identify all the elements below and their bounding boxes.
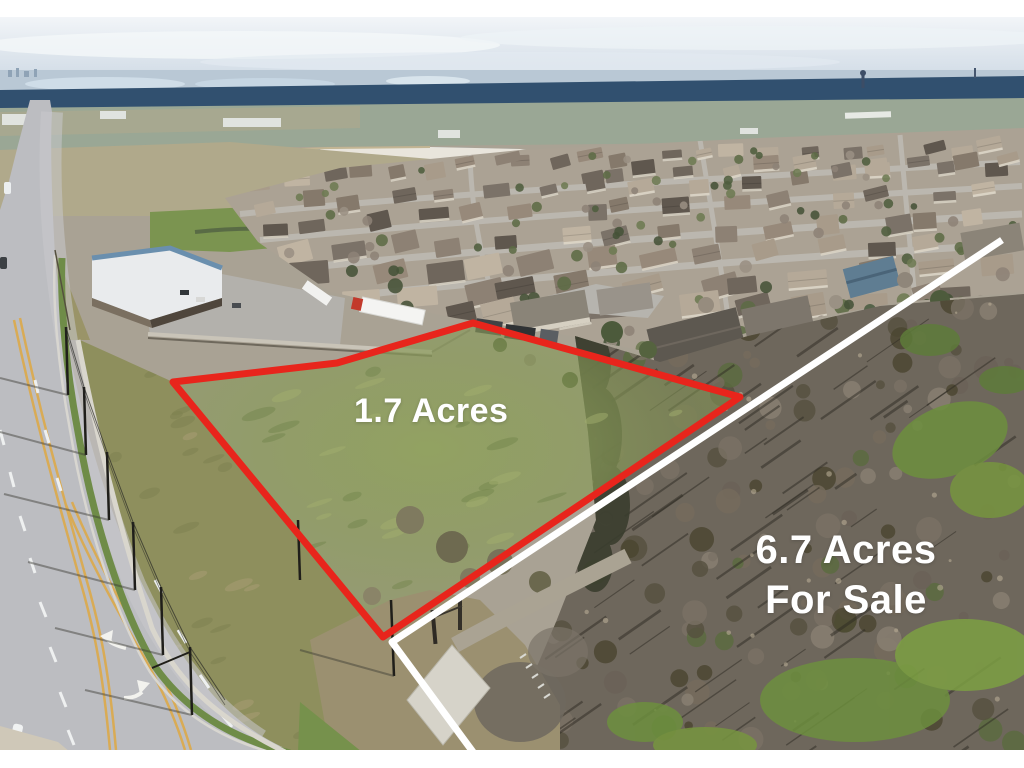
light-speck bbox=[842, 520, 847, 525]
tree bbox=[862, 157, 871, 166]
tree bbox=[348, 252, 360, 264]
tree bbox=[839, 215, 848, 224]
tree bbox=[794, 400, 816, 422]
tree bbox=[797, 207, 805, 215]
tree bbox=[811, 625, 835, 649]
tree bbox=[765, 420, 775, 430]
tree bbox=[723, 181, 732, 190]
tree bbox=[616, 262, 627, 273]
tree bbox=[512, 219, 520, 227]
tree bbox=[644, 583, 665, 604]
tree bbox=[376, 234, 388, 246]
tree bbox=[696, 213, 705, 222]
house bbox=[418, 207, 449, 223]
tree bbox=[326, 210, 336, 220]
tree bbox=[284, 248, 294, 258]
tree bbox=[388, 265, 399, 276]
tree bbox=[680, 201, 688, 209]
tree bbox=[346, 265, 358, 277]
tree bbox=[772, 163, 779, 170]
tree bbox=[996, 267, 1010, 281]
tree bbox=[756, 152, 763, 159]
light-speck bbox=[784, 662, 788, 666]
tree bbox=[874, 201, 883, 210]
tree bbox=[734, 155, 743, 164]
tree bbox=[938, 356, 960, 378]
tree bbox=[474, 243, 482, 251]
tree bbox=[842, 201, 850, 209]
tree bbox=[365, 242, 374, 251]
tree bbox=[884, 199, 894, 209]
light-speck bbox=[826, 471, 832, 477]
tree bbox=[689, 527, 714, 552]
tree bbox=[322, 190, 329, 197]
large-parcel-label-line2: For Sale bbox=[743, 578, 949, 623]
tree bbox=[296, 194, 304, 202]
tree bbox=[697, 665, 712, 680]
tree bbox=[793, 169, 802, 178]
light-speck bbox=[955, 312, 957, 314]
tree bbox=[726, 606, 742, 622]
tree bbox=[582, 205, 590, 213]
house bbox=[426, 260, 466, 287]
small-parcel-label: 1.7 Acres bbox=[354, 392, 508, 431]
tree bbox=[675, 503, 694, 522]
house bbox=[933, 191, 956, 204]
tree bbox=[509, 246, 517, 254]
large-parcel-label-line1: 6.7 Acres bbox=[743, 528, 949, 573]
tree bbox=[388, 278, 403, 293]
house bbox=[689, 179, 710, 197]
tree bbox=[863, 174, 870, 181]
frame-bottom bbox=[0, 750, 1024, 768]
tree bbox=[631, 187, 638, 194]
tree bbox=[515, 183, 524, 192]
tree bbox=[532, 202, 542, 212]
tree bbox=[813, 228, 824, 239]
tree bbox=[669, 241, 676, 248]
dark-gravel bbox=[528, 627, 588, 677]
house bbox=[303, 189, 326, 207]
car bbox=[0, 257, 7, 269]
tree bbox=[999, 550, 1010, 561]
tree bbox=[362, 216, 372, 226]
tree bbox=[654, 236, 663, 245]
tree bbox=[418, 167, 425, 174]
cloud bbox=[200, 52, 840, 72]
tree bbox=[609, 246, 618, 255]
tree bbox=[810, 210, 819, 219]
tree bbox=[636, 221, 645, 230]
frame-top bbox=[0, 0, 1024, 17]
tree bbox=[718, 436, 742, 460]
tree bbox=[948, 216, 959, 227]
tree bbox=[652, 176, 661, 185]
tree bbox=[614, 227, 624, 237]
light-speck bbox=[751, 489, 756, 494]
tree bbox=[811, 152, 818, 159]
tree bbox=[370, 251, 379, 260]
tree bbox=[873, 430, 886, 443]
tree bbox=[592, 205, 599, 212]
tree bbox=[726, 189, 735, 198]
light-speck bbox=[894, 628, 898, 632]
tree bbox=[743, 351, 751, 359]
light-speck bbox=[995, 697, 1000, 702]
house bbox=[727, 276, 758, 296]
tree bbox=[339, 207, 348, 216]
tree bbox=[846, 151, 855, 160]
gate-post bbox=[458, 600, 462, 630]
tree bbox=[692, 561, 708, 577]
tree bbox=[604, 671, 627, 694]
tree bbox=[688, 157, 696, 165]
light-speck bbox=[858, 353, 862, 357]
car bbox=[180, 290, 189, 295]
tree bbox=[972, 698, 994, 720]
house bbox=[961, 208, 983, 227]
tree bbox=[330, 182, 339, 191]
tree bbox=[594, 640, 617, 663]
tree bbox=[907, 258, 916, 267]
tree bbox=[711, 182, 719, 190]
tree bbox=[715, 632, 734, 651]
light-speck bbox=[746, 396, 751, 401]
house bbox=[263, 223, 288, 238]
tree bbox=[935, 233, 945, 243]
tree bbox=[903, 405, 912, 414]
house bbox=[913, 212, 937, 232]
light-speck bbox=[988, 302, 991, 305]
house bbox=[562, 226, 592, 245]
tree bbox=[603, 171, 611, 179]
tree bbox=[832, 166, 839, 173]
light-speck bbox=[750, 633, 754, 637]
tree bbox=[796, 384, 810, 398]
house bbox=[662, 149, 682, 161]
tree bbox=[670, 669, 688, 687]
tree bbox=[860, 468, 876, 484]
tree bbox=[748, 648, 764, 664]
tree bbox=[760, 281, 772, 293]
tree bbox=[951, 297, 974, 320]
tree bbox=[623, 156, 631, 164]
tree bbox=[780, 214, 789, 223]
tree bbox=[624, 326, 634, 336]
tree bbox=[571, 250, 583, 262]
house bbox=[742, 176, 762, 192]
tree bbox=[503, 265, 514, 276]
house bbox=[787, 269, 828, 291]
tree bbox=[681, 694, 693, 706]
tree bbox=[739, 260, 751, 272]
tree bbox=[749, 358, 760, 369]
car bbox=[196, 297, 205, 302]
house bbox=[673, 166, 694, 180]
house bbox=[388, 164, 406, 182]
light-speck bbox=[692, 373, 698, 379]
house bbox=[718, 143, 744, 157]
tree bbox=[591, 261, 601, 271]
house bbox=[937, 161, 956, 177]
tree bbox=[612, 218, 622, 228]
light-speck bbox=[997, 575, 1003, 581]
light-speck bbox=[603, 618, 608, 623]
tree bbox=[716, 489, 741, 514]
light-speck bbox=[584, 610, 588, 614]
car bbox=[232, 303, 241, 308]
aerial-photo: 1.7 Acres 6.7 Acres For Sale bbox=[0, 0, 1024, 768]
aerial-scene bbox=[0, 0, 1024, 768]
tree bbox=[561, 182, 568, 189]
tree bbox=[882, 174, 890, 182]
tree bbox=[652, 197, 661, 206]
tree bbox=[894, 380, 907, 393]
tree bbox=[557, 277, 571, 291]
tree bbox=[993, 592, 1010, 609]
tree bbox=[980, 302, 998, 320]
tree bbox=[881, 226, 891, 236]
light-speck bbox=[949, 559, 952, 562]
car bbox=[4, 182, 11, 194]
tree bbox=[885, 422, 895, 432]
house bbox=[715, 226, 737, 243]
tree bbox=[682, 600, 707, 625]
tree bbox=[893, 353, 913, 373]
tree bbox=[588, 152, 596, 160]
house bbox=[631, 159, 656, 178]
tree bbox=[708, 552, 717, 561]
tree bbox=[844, 300, 854, 310]
tree bbox=[981, 571, 992, 582]
light-speck bbox=[726, 630, 731, 635]
tree bbox=[911, 203, 918, 210]
tree bbox=[876, 380, 885, 389]
tree bbox=[853, 450, 869, 466]
tree bbox=[583, 242, 593, 252]
water-tower-top bbox=[860, 70, 866, 76]
light-speck bbox=[932, 492, 937, 497]
